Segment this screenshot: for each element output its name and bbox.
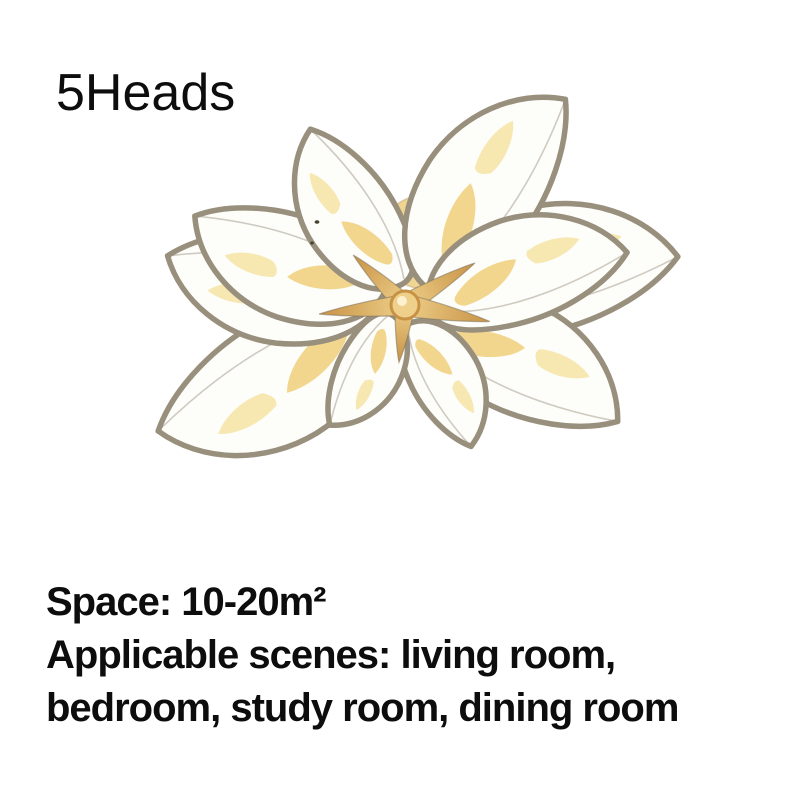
spec-scenes-line2: bedroom, study room, dining room (46, 682, 796, 735)
product-specs: Space: 10-20m² Applicable scenes: living… (46, 576, 796, 735)
spec-space: Space: 10-20m² (46, 576, 796, 629)
lamp-hub (391, 291, 419, 319)
spec-scenes-line1: Applicable scenes: living room, (46, 629, 796, 682)
